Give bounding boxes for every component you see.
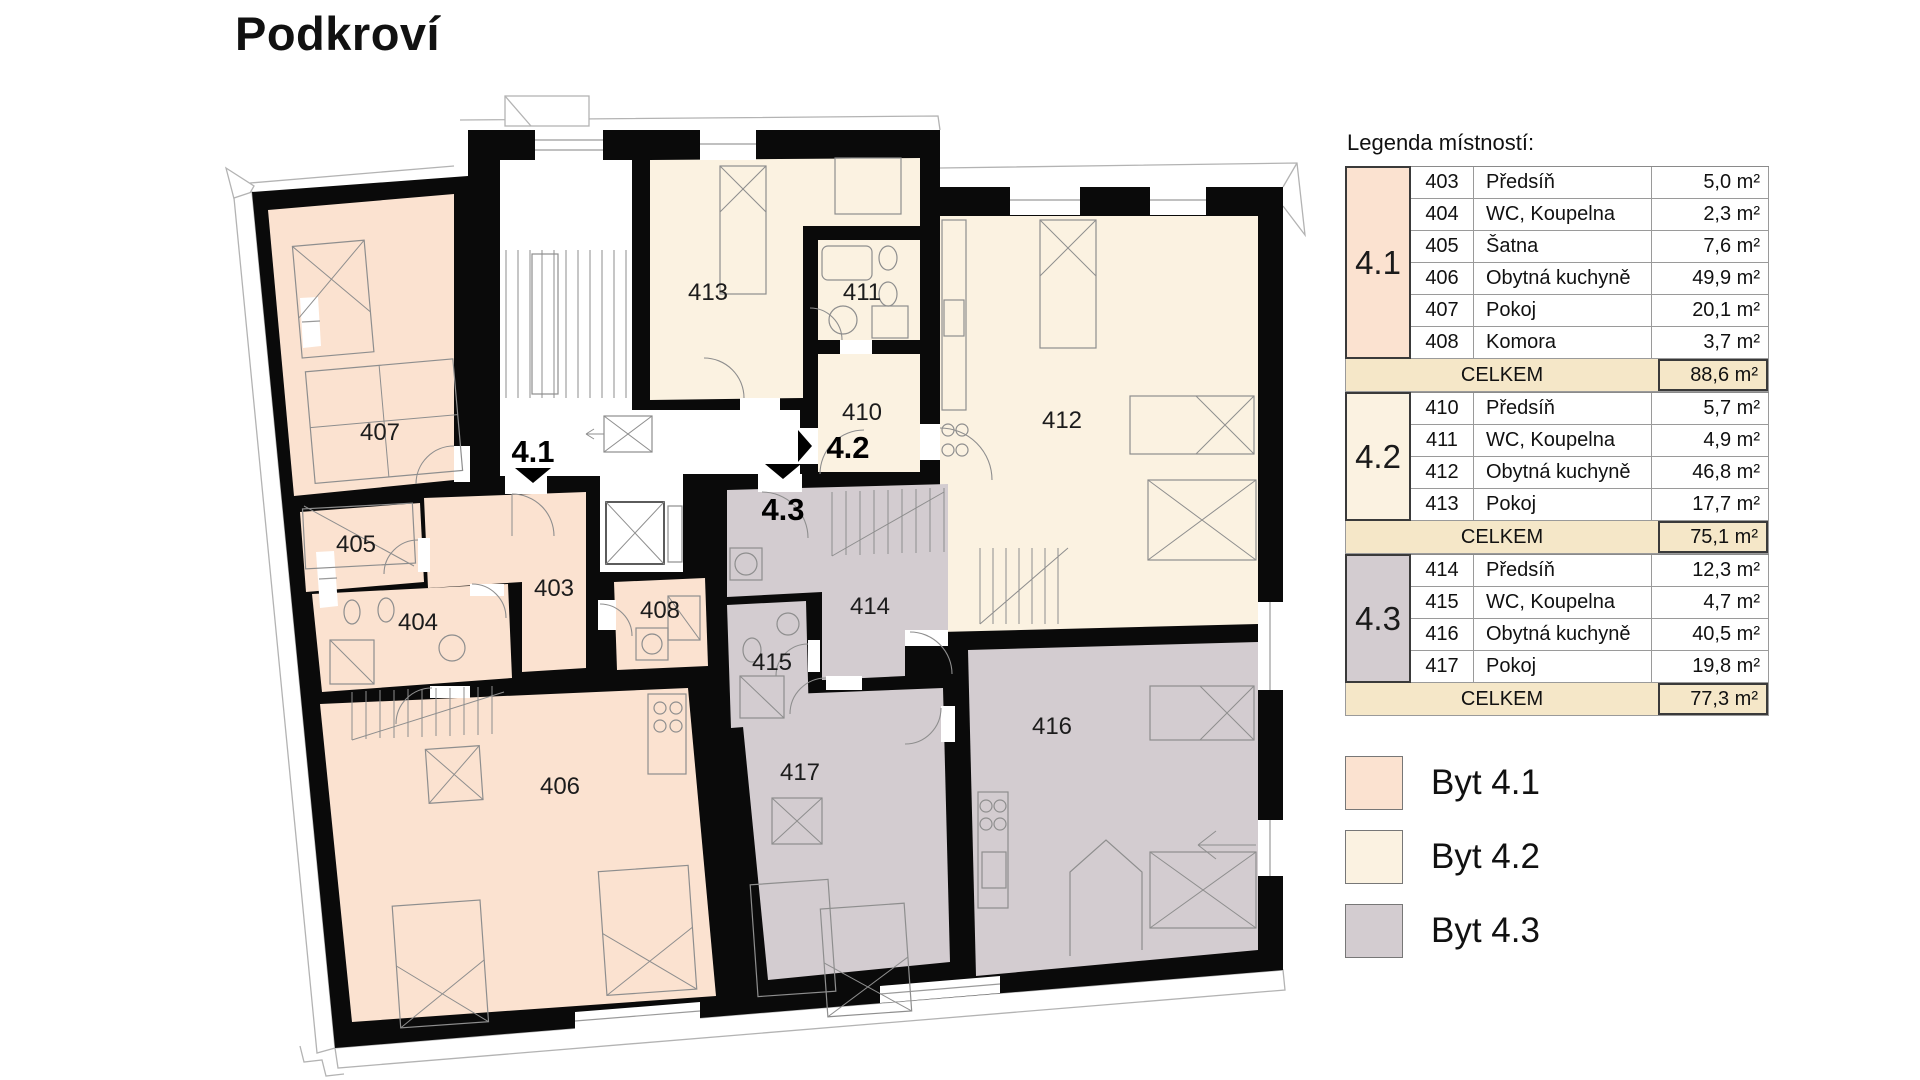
legend-row-410: 410Předsíň5,7 m² [1411, 393, 1769, 425]
room-area: 7,6 m² [1652, 231, 1768, 262]
room-name: WC, Koupelna [1474, 425, 1652, 456]
room-name: Pokoj [1474, 489, 1652, 520]
legend-row-408: 408Komora3,7 m² [1411, 327, 1769, 359]
legend-section-4.3: 4.3414Předsíň12,3 m²415WC, Koupelna4,7 m… [1345, 554, 1769, 683]
room-area: 46,8 m² [1652, 457, 1768, 488]
room-name: Předsíň [1474, 167, 1652, 198]
room-area: 2,3 m² [1652, 199, 1768, 230]
room-416-area [968, 642, 1258, 976]
byt-43-label: Byt 4.3 [1431, 911, 1540, 951]
room-label-411: 411 [843, 279, 881, 306]
total-area: 75,1 m² [1658, 521, 1768, 553]
room-label-407: 407 [360, 419, 400, 446]
legend-row-416: 416Obytná kuchyně40,5 m² [1411, 619, 1769, 651]
room-label-404: 404 [398, 609, 438, 636]
room-404-area [312, 584, 512, 692]
total-label: CELKEM [1346, 521, 1658, 553]
legend-row-404: 404WC, Koupelna2,3 m² [1411, 199, 1769, 231]
apartment-label-42: 4.2 [826, 430, 869, 465]
apartment-label-43: 4.3 [761, 492, 804, 527]
room-label-416: 416 [1032, 713, 1072, 740]
room-number: 415 [1411, 587, 1474, 618]
room-number: 408 [1411, 327, 1474, 358]
room-number: 405 [1411, 231, 1474, 262]
room-area: 19,8 m² [1652, 651, 1768, 682]
room-number: 410 [1411, 393, 1474, 424]
swatch-byt-43: Byt 4.3 [1345, 904, 1540, 958]
room-number: 406 [1411, 263, 1474, 294]
room-number: 413 [1411, 489, 1474, 520]
room-name: WC, Koupelna [1474, 587, 1652, 618]
room-number: 417 [1411, 651, 1474, 682]
byt-42-swatch [1345, 830, 1403, 884]
legend-row-405: 405Šatna7,6 m² [1411, 231, 1769, 263]
room-area: 5,0 m² [1652, 167, 1768, 198]
room-407-area [268, 194, 454, 496]
byt-43-swatch [1345, 904, 1403, 958]
room-area: 4,7 m² [1652, 587, 1768, 618]
legend-total-row-4.2: CELKEM75,1 m² [1345, 521, 1769, 554]
room-area: 12,3 m² [1652, 555, 1768, 586]
room-area: 4,9 m² [1652, 425, 1768, 456]
byt-42-label: Byt 4.2 [1431, 837, 1540, 877]
room-label-403: 403 [534, 575, 574, 602]
byt-41-label: Byt 4.1 [1431, 763, 1540, 803]
room-number: 411 [1411, 425, 1474, 456]
apartment-cell-4.1: 4.1 [1345, 166, 1411, 359]
legend-row-415: 415WC, Koupelna4,7 m² [1411, 587, 1769, 619]
legend-total-row-4.1: CELKEM88,6 m² [1345, 359, 1769, 392]
total-label: CELKEM [1346, 683, 1658, 715]
room-name: Obytná kuchyně [1474, 457, 1652, 488]
swatch-byt-42: Byt 4.2 [1345, 830, 1540, 884]
apartment-label-41: 4.1 [511, 434, 554, 469]
swatch-byt-41: Byt 4.1 [1345, 756, 1540, 810]
room-412-area [940, 216, 1258, 632]
room-number: 403 [1411, 167, 1474, 198]
room-name: Šatna [1474, 231, 1652, 262]
room-label-417: 417 [780, 759, 820, 786]
legend-row-414: 414Předsíň12,3 m² [1411, 555, 1769, 587]
room-name: Komora [1474, 327, 1652, 358]
legend-row-407: 407Pokoj20,1 m² [1411, 295, 1769, 327]
room-number: 414 [1411, 555, 1474, 586]
room-name: Obytná kuchyně [1474, 263, 1652, 294]
total-area: 88,6 m² [1658, 359, 1768, 391]
byt-41-swatch [1345, 756, 1403, 810]
room-area: 20,1 m² [1652, 295, 1768, 326]
room-area: 17,7 m² [1652, 489, 1768, 520]
legend-section-4.1: 4.1403Předsíň5,0 m²404WC, Koupelna2,3 m²… [1345, 166, 1769, 359]
room-name: Předsíň [1474, 393, 1652, 424]
room-area: 5,7 m² [1652, 393, 1768, 424]
apartment-cell-4.3: 4.3 [1345, 554, 1411, 683]
room-label-406: 406 [540, 773, 580, 800]
total-label: CELKEM [1346, 359, 1658, 391]
room-408-area [614, 578, 708, 670]
room-number: 416 [1411, 619, 1474, 650]
room-number: 407 [1411, 295, 1474, 326]
room-label-412: 412 [1042, 407, 1082, 434]
room-name: Předsíň [1474, 555, 1652, 586]
room-name: WC, Koupelna [1474, 199, 1652, 230]
legend-row-411: 411WC, Koupelna4,9 m² [1411, 425, 1769, 457]
legend-row-413: 413Pokoj17,7 m² [1411, 489, 1769, 521]
room-label-414: 414 [850, 593, 890, 620]
legend-row-403: 403Předsíň5,0 m² [1411, 167, 1769, 199]
room-name: Obytná kuchyně [1474, 619, 1652, 650]
room-label-413: 413 [688, 279, 728, 306]
apartment-cell-4.2: 4.2 [1345, 392, 1411, 521]
room-area: 3,7 m² [1652, 327, 1768, 358]
room-406-area [320, 688, 716, 1022]
room-area: 40,5 m² [1652, 619, 1768, 650]
room-name: Pokoj [1474, 651, 1652, 682]
legend-heading: Legenda místností: [1347, 130, 1534, 156]
room-number: 404 [1411, 199, 1474, 230]
room-area: 49,9 m² [1652, 263, 1768, 294]
room-label-408: 408 [640, 597, 680, 624]
legend-section-4.2: 4.2410Předsíň5,7 m²411WC, Koupelna4,9 m²… [1345, 392, 1769, 521]
legend-row-417: 417Pokoj19,8 m² [1411, 651, 1769, 683]
total-area: 77,3 m² [1658, 683, 1768, 715]
room-name: Pokoj [1474, 295, 1652, 326]
legend-total-row-4.3: CELKEM77,3 m² [1345, 683, 1769, 716]
legend-row-406: 406Obytná kuchyně49,9 m² [1411, 263, 1769, 295]
room-label-405: 405 [336, 531, 376, 558]
room-label-415: 415 [752, 649, 792, 676]
room-label-410: 410 [842, 399, 882, 426]
legend-row-412: 412Obytná kuchyně46,8 m² [1411, 457, 1769, 489]
legend-table: 4.1403Předsíň5,0 m²404WC, Koupelna2,3 m²… [1345, 166, 1769, 716]
page: Podkroví [0, 0, 1920, 1080]
room-number: 412 [1411, 457, 1474, 488]
